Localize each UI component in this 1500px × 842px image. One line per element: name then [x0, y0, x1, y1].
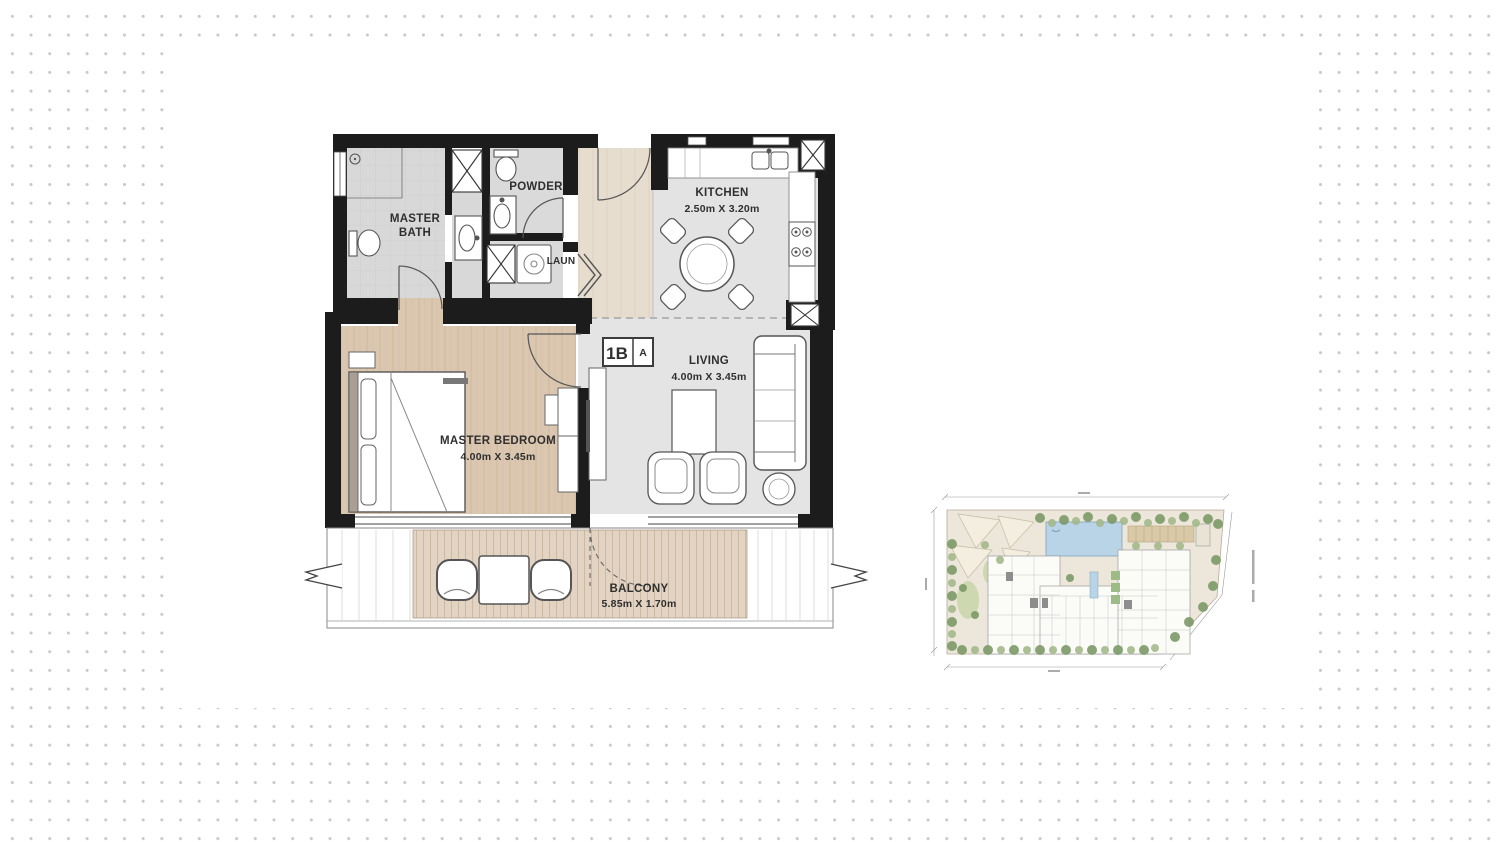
sofa-icon [754, 336, 806, 470]
pool [1046, 522, 1122, 556]
room-label-kitchen: KITCHEN [695, 187, 748, 199]
side-table-icon [763, 473, 795, 505]
unit-code-label: 1B [606, 344, 628, 363]
toilet-icon [349, 230, 380, 256]
balcony-chair-icon [437, 560, 477, 600]
armchair-icon [700, 452, 746, 504]
room-dim-kitchen: 2.50m X 3.20m [685, 203, 760, 215]
nightstand-icon [349, 352, 375, 368]
room-label-master-bath-2: BATH [399, 227, 431, 239]
coffee-table-icon [672, 390, 716, 454]
room-label-powder: POWDER [509, 181, 563, 193]
room-label-master-bath-1: MASTER [390, 213, 441, 225]
unit-variant-label: A [639, 347, 647, 359]
room-label-balcony: BALCONY [610, 583, 669, 595]
powder-toilet-icon [494, 150, 518, 181]
bath-vanity-sink-icon [455, 216, 482, 260]
laundry-shaft-icon [487, 245, 515, 283]
room-label-laundry: LAUN [547, 256, 576, 267]
site-key-plan [915, 483, 1275, 678]
room-dim-balcony: 5.85m X 1.70m [602, 598, 677, 610]
bath-door-threshold [398, 298, 443, 326]
room-label-master-bedroom: MASTER BEDROOM [440, 435, 556, 447]
room-label-living: LIVING [689, 355, 729, 367]
balcony-furniture [437, 556, 571, 604]
armchair-icon [648, 452, 694, 504]
floor-plan-drawing: 1B A MASTER BATH POWDER LAUN KITCHEN 2.5… [300, 118, 875, 638]
stove-icon [789, 222, 815, 266]
tv-console-icon [586, 368, 606, 480]
kitchen-shaft-icon [791, 304, 819, 326]
closet-shaft-icon [452, 150, 482, 192]
balcony-table-icon [479, 556, 529, 604]
room-dim-living: 4.00m X 3.45m [672, 371, 747, 383]
powder-sink-icon [490, 196, 516, 234]
corner-shaft-icon [801, 140, 825, 170]
balcony-area [306, 528, 866, 628]
balcony-chair-icon [531, 560, 571, 600]
bed-bench-icon [443, 378, 468, 384]
room-dim-master-bedroom: 4.00m X 3.45m [461, 451, 536, 463]
entry-hall-floor [578, 148, 653, 318]
unit-badge: 1B A [603, 338, 653, 366]
